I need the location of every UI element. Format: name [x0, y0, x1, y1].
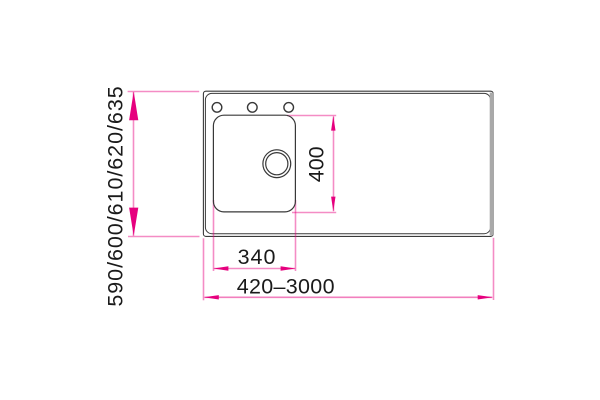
svg-text:590/600/610/620/635: 590/600/610/620/635: [104, 85, 128, 306]
svg-text:400: 400: [305, 146, 329, 182]
svg-text:420–3000: 420–3000: [237, 275, 335, 299]
svg-text:340: 340: [238, 245, 277, 269]
